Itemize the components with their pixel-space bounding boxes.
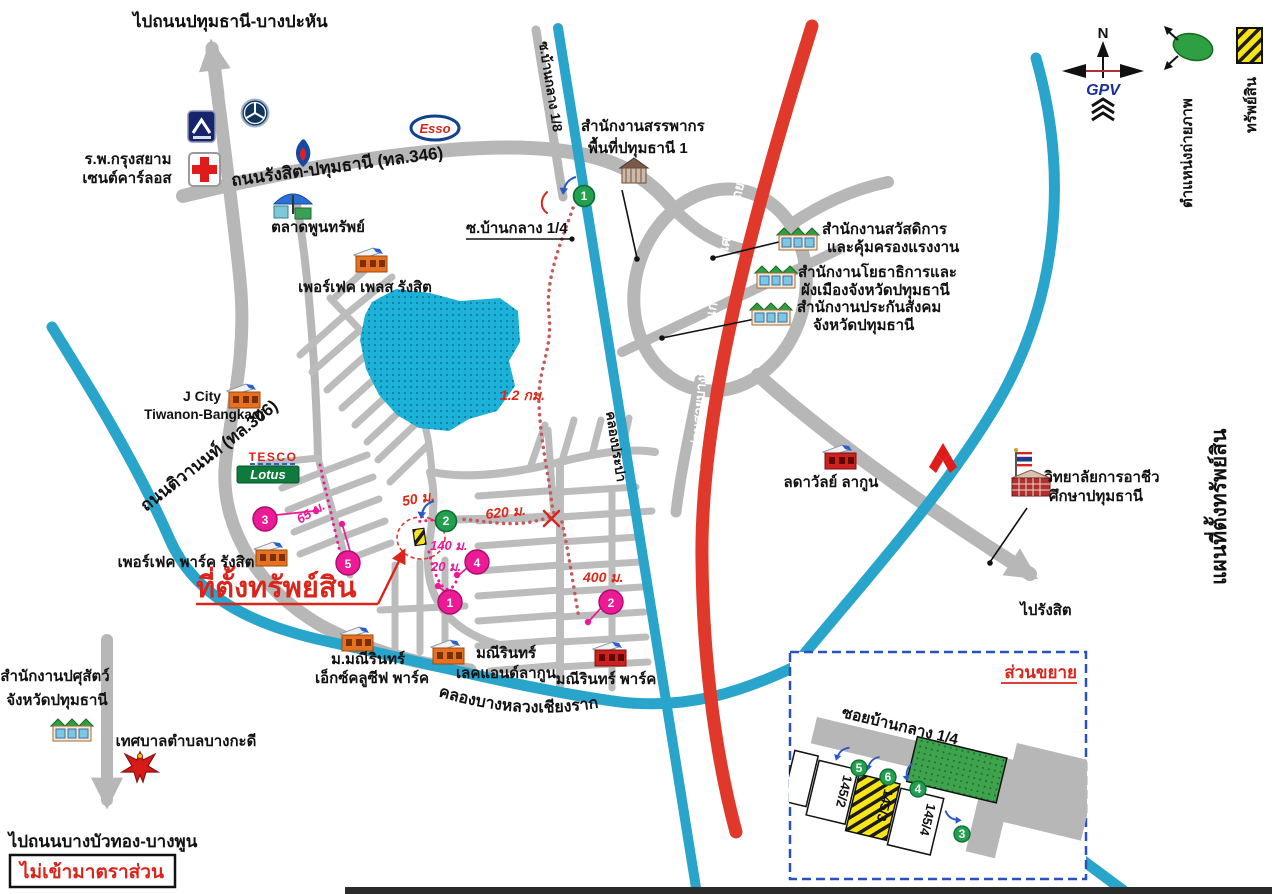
maneerin-exclusive-label-2: เอ็กซ์คลูซีฟ พาร์ค bbox=[315, 668, 429, 688]
maneerin-lake-label-2: เลคแอนด์ลากูน bbox=[456, 664, 557, 683]
canal-east-branch bbox=[795, 58, 1054, 665]
legend-photo-position-label: ตำแหน่งถ่ายภาพ bbox=[1179, 98, 1196, 208]
distance-140m: 140 ม. bbox=[430, 538, 467, 553]
road-346-label: ถนนรังสิต-ปทุมธานี (ทล.346) bbox=[230, 142, 444, 191]
pink-marker-5: 5 bbox=[345, 557, 352, 571]
livestock-label-1: สำนักงานปศุสัตว์ bbox=[0, 667, 109, 686]
maneerin-park-icon bbox=[593, 642, 626, 666]
mazda-logo-icon bbox=[188, 111, 215, 142]
maneerin-lake-label-1: มณีรินทร์ bbox=[476, 644, 537, 662]
pink-marker-4: 4 bbox=[474, 556, 481, 570]
pink-marker-3: 3 bbox=[262, 513, 269, 527]
publicworks-label-1: สำนักงานโยธาธิการและ bbox=[798, 262, 957, 281]
tesco-label: TESCO bbox=[249, 450, 298, 464]
college-label-2: ศึกษาปทุมธานี bbox=[1049, 487, 1144, 506]
to-south-label: ไปถนนบางบัวทอง-บางพูน bbox=[7, 831, 198, 853]
perfect-place-icon bbox=[354, 248, 387, 272]
compass: N GPV bbox=[1062, 25, 1144, 120]
scan-edge-strip bbox=[345, 887, 1272, 894]
to-north-label: ไปถนนปทุมธานี-บางปะหัน bbox=[131, 11, 328, 32]
livestock-label-2: จังหวัดปทุมธานี bbox=[6, 692, 108, 710]
maneerin-park-label: มณีรินทร์ พาร์ค bbox=[556, 670, 657, 688]
legend-property-label: ทรัพย์สิน bbox=[1242, 76, 1260, 133]
legend-property-icon bbox=[1237, 28, 1262, 63]
ladawan-label: ลดาวัลย์ ลากูน bbox=[784, 473, 880, 492]
pink-marker-1: 1 bbox=[447, 596, 454, 610]
hospital-label-1: ร.พ.กรุงสยาม bbox=[85, 151, 172, 169]
social-security-label-2: จังหวัดปทุมธานี bbox=[813, 317, 915, 335]
scale-note-label: ไม่เข้ามาตราส่วน bbox=[18, 860, 164, 883]
mercedes-logo-icon bbox=[242, 100, 269, 127]
property-location-map: ทางด่วนสายบางปะอิน-ปากเกร็ด-ทางพิเศษอุดร… bbox=[0, 0, 1272, 894]
revenue-label-2: พื้นที่ปทุมธานี 1 bbox=[588, 136, 688, 158]
legend-photo-position-icon bbox=[1164, 26, 1216, 70]
college-label-1: วิทยาลัยการอาชีว bbox=[1044, 468, 1160, 486]
interchange-loops bbox=[611, 169, 1030, 574]
inset-title: ส่วนขยาย bbox=[1004, 663, 1077, 682]
soi-banklang-1-4-label: ซ.บ้านกลาง 1/4 bbox=[466, 220, 568, 237]
compass-north-label: N bbox=[1098, 25, 1109, 42]
welfare-label-2: และคุ้มครองแรงงาน bbox=[827, 239, 960, 257]
publicworks-label-2: ผังเมืองจังหวัดปทุมธานี bbox=[801, 282, 951, 300]
publicworks-office-icon bbox=[755, 266, 797, 288]
legend: ตำแหน่งถ่ายภาพ ทรัพย์สิน bbox=[1164, 26, 1262, 208]
road-north-arrowshaft bbox=[212, 48, 218, 95]
road-market-spur bbox=[297, 205, 318, 458]
mitsubishi-logo-icon bbox=[929, 443, 957, 473]
livestock-office-icon bbox=[51, 719, 93, 741]
hospital-label-2: เซนต์คาร์ลอส bbox=[82, 169, 172, 187]
green-marker-2: 2 bbox=[443, 514, 450, 528]
to-rangsit-label: ไปรังสิต bbox=[1018, 600, 1071, 619]
perfect-place-label: เพอร์เฟค เพลส รังสิต bbox=[298, 278, 432, 296]
route-start-hook bbox=[542, 192, 547, 213]
inset-marker-5: 5 bbox=[856, 761, 863, 775]
garuda-emblem-icon bbox=[122, 752, 158, 782]
jcity-label-1: J City bbox=[183, 388, 221, 404]
hospital-icon bbox=[189, 153, 220, 186]
inset-enlargement: 145/2 145/3 145/4 ซอยบ้านกลาง 1/4 5 6 4 … bbox=[779, 652, 1100, 879]
lotus-label: Lotus bbox=[250, 467, 285, 482]
pink-marker-2: 2 bbox=[608, 596, 615, 610]
distance-1-2km: 1.2 กม. bbox=[500, 387, 545, 403]
compass-gpv-label: GPV bbox=[1086, 82, 1121, 99]
property-arrow bbox=[378, 551, 404, 604]
distance-20m: 20 ม. bbox=[430, 559, 461, 574]
compass-fletching-icon bbox=[1092, 99, 1114, 120]
map-canvas: ทางด่วนสายบางปะอิน-ปากเกร็ด-ทางพิเศษอุดร… bbox=[0, 0, 1272, 894]
map-title-vertical: แผนที่ตั้งทรัพย์สิน bbox=[1203, 428, 1231, 585]
inset-marker-4: 4 bbox=[915, 782, 922, 796]
municipality-label: เทศบาลตำบลบางกะดี bbox=[116, 733, 257, 750]
perfect-park-icon bbox=[254, 542, 287, 566]
welfare-office-icon bbox=[777, 228, 819, 250]
maneerin-lake-icon bbox=[431, 640, 464, 664]
esso-logo-icon: Esso bbox=[411, 116, 459, 140]
social-security-label-1: สำนักงานประกันสังคม bbox=[797, 299, 941, 316]
revenue-label-1: สำนักงานสรรพากร bbox=[581, 118, 706, 135]
social-security-office-icon bbox=[750, 303, 792, 325]
inset-marker-3: 3 bbox=[959, 827, 966, 841]
perfect-park-label: เพอร์เฟค พาร์ค รังสิต bbox=[118, 553, 255, 571]
market-label: ตลาดพูนทรัพย์ bbox=[271, 218, 365, 237]
distance-400m: 400 ม. bbox=[582, 569, 623, 585]
esso-label: Esso bbox=[419, 121, 450, 136]
market-icon bbox=[274, 194, 312, 219]
green-marker-1: 1 bbox=[581, 189, 588, 203]
maneerin-exclusive-label-1: ม.มณีรินทร์ bbox=[331, 650, 406, 668]
welfare-label-1: สำนักงานสวัสดิการ bbox=[822, 220, 948, 238]
inset-marker-6: 6 bbox=[885, 770, 892, 784]
tesco-lotus-logo-icon: TESCO Lotus bbox=[237, 450, 299, 483]
scale-note-box: ไม่เข้ามาตราส่วน bbox=[10, 855, 175, 887]
lake bbox=[360, 289, 520, 431]
thai-flag-icon bbox=[1017, 452, 1032, 466]
